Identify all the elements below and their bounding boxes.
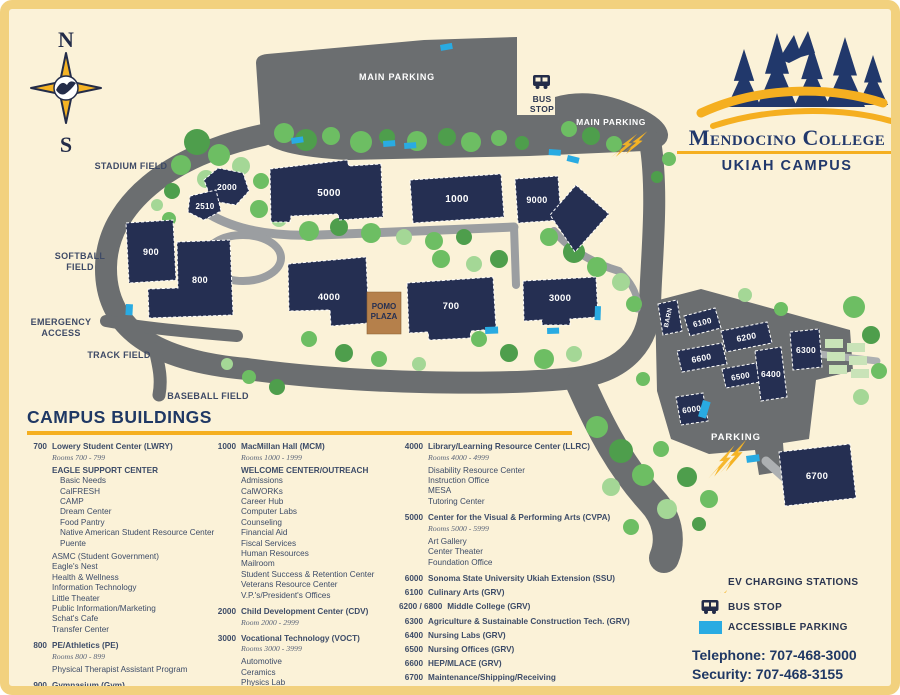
legend-row-bus: BUS STOP — [692, 599, 897, 615]
building-number: 2000 — [212, 607, 236, 618]
directory-rule — [27, 431, 572, 435]
accessible-parking-spot — [125, 304, 133, 315]
department-item: CalFRESH — [52, 487, 212, 497]
building-number: 6000 — [399, 574, 423, 585]
legend-label: EV CHARGING STATIONS — [728, 577, 858, 588]
building-number: 6600 — [399, 659, 423, 670]
department-item: Counseling — [241, 518, 399, 528]
map-label-bus-stop: BUSSTOP — [530, 94, 554, 114]
department-item: Tutoring Center — [428, 497, 669, 507]
department-item: Eagle's Nest — [52, 562, 212, 572]
department-item: Basic Needs — [52, 476, 212, 486]
directory-column-1: 700Lowery Student Center (LWRY)Rooms 700… — [27, 442, 212, 695]
building-number: 6200 / 6800 — [399, 602, 442, 613]
rooms-range: Rooms 800 - 899 — [52, 652, 212, 662]
compass: N S — [31, 27, 101, 157]
department-item: Dream Center — [52, 507, 212, 517]
map-label-stadium-field: STADIUM FIELD — [95, 161, 168, 171]
legend: EV CHARGING STATIONSBUS STOPACCESSIBLE P… — [692, 571, 897, 684]
legend-label: ACCESSIBLE PARKING — [728, 622, 848, 633]
logo: Mendocino College UKIAH CAMPUS — [667, 127, 900, 174]
map-label-main-parking-top: MAIN PARKING — [359, 72, 435, 82]
building-label-2510: 2510 — [196, 202, 215, 211]
department-item: Mailroom — [241, 559, 399, 569]
building-number: 6500 — [399, 645, 423, 656]
building-number: 6700 — [399, 673, 423, 684]
building-pomo-plaza: POMOPLAZA — [367, 292, 401, 334]
accessible-parking-spot — [567, 155, 580, 164]
directory-entry-6700: 6700Maintenance/Shipping/Receiving — [399, 673, 669, 684]
building-name: PE/Athletics (PE) — [52, 641, 118, 652]
rooms-range: Rooms 700 - 799 — [52, 453, 212, 463]
department-item: Foundation Office — [428, 558, 669, 568]
building-number: 1000 — [212, 442, 236, 453]
directory-column-2: 1000MacMillan Hall (MCM)Rooms 1000 - 199… — [212, 442, 399, 694]
department-item: Public Information/Marketing — [52, 604, 212, 614]
building-label-6300: 6300 — [796, 345, 816, 355]
legend-row-accessible: ACCESSIBLE PARKING — [692, 621, 897, 634]
gold-swoosh-2 — [713, 111, 891, 126]
department-item: Schat's Cafe — [52, 614, 212, 624]
building-label-6700: 6700 — [806, 471, 828, 482]
campus-buildings-directory: CAMPUS BUILDINGS 700Lowery Student Cente… — [27, 407, 677, 442]
legend-row-ev-bolt: EV CHARGING STATIONS — [692, 571, 897, 593]
department-item: Information Technology — [52, 583, 212, 593]
building-number: 3000 — [212, 634, 236, 645]
directory-entry-62006800: 6200 / 6800Middle College (GRV) — [399, 602, 669, 613]
building-number: 9000 — [399, 688, 423, 695]
department-item: Human Resources — [241, 549, 399, 559]
telephone-number: Telephone: 707-468-3000 — [692, 646, 897, 665]
legend-label: BUS STOP — [728, 602, 782, 613]
accessible-parking-spot — [485, 327, 498, 334]
department-item: Food Pantry — [52, 518, 212, 528]
building-3000: 3000 — [523, 277, 598, 325]
building-5000: 5000 — [270, 160, 383, 222]
building-name: HEP/MLACE (GRV) — [428, 659, 502, 670]
college-name: Mendocino College — [667, 127, 900, 149]
building-label-3000: 3000 — [549, 293, 571, 304]
department-item: Automotive — [241, 657, 399, 667]
legend-rows: EV CHARGING STATIONSBUS STOPACCESSIBLE P… — [692, 571, 897, 634]
building-label-5000: 5000 — [317, 188, 341, 199]
building-name: Maintenance/Shipping/Receiving — [428, 673, 556, 684]
building-number: 700 — [27, 442, 47, 453]
building-name: Middle College (GRV) — [447, 602, 530, 613]
building-name: Gymnasium (Gym) — [52, 681, 125, 692]
building-label-1000: 1000 — [445, 194, 469, 205]
rooms-range: Rooms 5000 - 5999 — [428, 524, 669, 534]
building-name: Science Complex (SCNC) — [428, 688, 527, 695]
directory-entry-6000: 6000Sonoma State University Ukiah Extens… — [399, 574, 669, 585]
bus-stop-icon — [702, 600, 719, 614]
building-name: Sonoma State University Ukiah Extension … — [428, 574, 615, 585]
building-6700: 6700 — [779, 444, 856, 506]
building-label-6400: 6400 — [761, 369, 781, 379]
department-item: Art Gallery — [428, 537, 669, 547]
department-item: Instruction Office — [428, 476, 669, 486]
directory-entry-6300: 6300Agriculture & Sustainable Constructi… — [399, 617, 669, 628]
directory-entry-5000: 5000Center for the Visual & Performing A… — [399, 513, 669, 568]
building-name: Nursing Offices (GRV) — [428, 645, 514, 656]
department-item: Admissions — [241, 476, 399, 486]
building-name: Child Development Center (CDV) — [241, 607, 368, 618]
building-700: 700 — [407, 277, 496, 340]
building-name: Lowery Student Center (LWRY) — [52, 442, 173, 453]
building-number: 6300 — [399, 617, 423, 628]
rooms-range: Room 2000 - 2999 — [241, 618, 399, 628]
directory-entry-2000: 2000Child Development Center (CDV)Room 2… — [212, 607, 399, 628]
directory-entry-700: 700Lowery Student Center (LWRY)Rooms 700… — [27, 442, 212, 635]
section-heading: EAGLE SUPPORT CENTER — [52, 466, 212, 477]
bus-stop-icon — [533, 75, 550, 89]
department-item: Health & Wellness — [52, 573, 212, 583]
campus-name: UKIAH CAMPUS — [667, 158, 900, 174]
map-label-main-parking-right: MAIN PARKING — [576, 117, 646, 127]
building-name: MacMillan Hall (MCM) — [241, 442, 325, 453]
department-item: Career Hub — [241, 497, 399, 507]
department-item: CAMP — [52, 497, 212, 507]
directory-title: CAMPUS BUILDINGS — [27, 407, 677, 428]
building-name: Vocational Technology (VOCT) — [241, 634, 360, 645]
department-item: Transfer Center — [52, 625, 212, 635]
map-label-track-field: TRACK FIELD — [87, 350, 150, 360]
building-4000: 4000 — [288, 257, 369, 326]
department-item: Disability Resource Center — [428, 466, 669, 476]
map-page: 5000200025101000900090080040007003000BAR… — [0, 0, 900, 695]
building-label-900: 900 — [143, 247, 159, 257]
department-item: Physics Lab — [241, 678, 399, 688]
building-label-9000: 9000 — [526, 195, 547, 205]
building-number: 6400 — [399, 631, 423, 642]
building-number: 6100 — [399, 588, 423, 599]
department-item: ASMC (Student Government) — [52, 552, 212, 562]
bus-icon — [692, 599, 728, 615]
department-item: Ceramics — [241, 668, 399, 678]
department-item: MESA — [428, 486, 669, 496]
accessible-parking-spot — [383, 140, 395, 147]
building-1000: 1000 — [410, 174, 504, 223]
department-item: V.P.'s/President's Offices — [241, 591, 399, 601]
department-item: Student Success & Retention Center — [241, 570, 399, 580]
building-name: Nursing Labs (GRV) — [428, 631, 506, 642]
map-label-emergency-access: EMERGENCYACCESS — [31, 317, 92, 338]
building-number: 4000 — [399, 442, 423, 453]
department-item: Fiscal Services — [241, 539, 399, 549]
directory-entry-4000: 4000Library/Learning Resource Center (LL… — [399, 442, 669, 507]
accessible-parking-spot — [404, 142, 416, 149]
building-label-2000: 2000 — [217, 182, 237, 192]
rooms-range: Rooms 4000 - 4999 — [428, 453, 669, 463]
directory-entry-6600: 6600HEP/MLACE (GRV) — [399, 659, 669, 670]
compass-north-label: N — [58, 27, 74, 52]
directory-column-3: 4000Library/Learning Resource Center (LL… — [399, 442, 669, 695]
ev-bolt-icon — [692, 571, 728, 593]
building-number: 800 — [27, 641, 47, 652]
section-heading: WELCOME CENTER/OUTREACH — [241, 466, 399, 477]
directory-entry-6100: 6100Culinary Arts (GRV) — [399, 588, 669, 599]
department-item: Little Theater — [52, 594, 212, 604]
building-label-pomo-plaza: POMOPLAZA — [371, 302, 398, 321]
building-label-700: 700 — [443, 301, 460, 312]
accessible-parking-spot — [549, 149, 561, 156]
directory-entry-3000: 3000Vocational Technology (VOCT)Rooms 30… — [212, 634, 399, 689]
department-item: Native American Student Resource Center — [52, 528, 212, 538]
map-label-parking-east: PARKING — [711, 432, 761, 443]
building-name: Library/Learning Resource Center (LLRC) — [428, 442, 590, 453]
logo-graphic — [701, 31, 891, 126]
directory-entry-1000: 1000MacMillan Hall (MCM)Rooms 1000 - 199… — [212, 442, 399, 601]
rooms-range: Rooms 1000 - 1999 — [241, 453, 399, 463]
rooms-range: Rooms 3000 - 3999 — [241, 644, 399, 654]
ev-charging-icon — [704, 590, 727, 593]
department-item: Veterans Resource Center — [241, 580, 399, 590]
accessible-parking-spot — [547, 328, 559, 334]
department-item: Financial Aid — [241, 528, 399, 538]
accessible-icon — [692, 621, 728, 634]
department-item: Computer Labs — [241, 507, 399, 517]
directory-entry-800: 800PE/Athletics (PE)Rooms 800 - 899Physi… — [27, 641, 212, 675]
logo-rule — [677, 151, 897, 154]
accessible-parking-spot — [595, 306, 601, 320]
directory-entry-6400: 6400Nursing Labs (GRV) — [399, 631, 669, 642]
building-name: Culinary Arts (GRV) — [428, 588, 504, 599]
compass-south-label: S — [60, 132, 72, 157]
directory-entry-9000: 9000Science Complex (SCNC) — [399, 688, 669, 695]
building-6300: 6300 — [790, 329, 822, 370]
phone-numbers: Telephone: 707-468-3000 Security: 707-46… — [692, 646, 897, 684]
building-name: Agriculture & Sustainable Construction T… — [428, 617, 630, 628]
department-item: Physical Therapist Assistant Program — [52, 665, 212, 675]
directory-entry-900: 900Gymnasium (Gym) — [27, 681, 212, 692]
building-label-4000: 4000 — [318, 292, 340, 303]
department-item: CalWORKs — [241, 487, 399, 497]
building-number: 5000 — [399, 513, 423, 524]
southwest-stub — [155, 349, 160, 395]
directory-entry-6500: 6500Nursing Offices (GRV) — [399, 645, 669, 656]
map-label-baseball-field: BASEBALL FIELD — [167, 391, 249, 401]
department-item: Puente — [52, 539, 212, 549]
building-number: 900 — [27, 681, 47, 692]
security-number: Security: 707-468-3155 — [692, 665, 897, 684]
building-name: Center for the Visual & Performing Arts … — [428, 513, 610, 524]
building-900: 900 — [126, 220, 176, 283]
department-item: Center Theater — [428, 547, 669, 557]
building-label-800: 800 — [192, 275, 208, 285]
